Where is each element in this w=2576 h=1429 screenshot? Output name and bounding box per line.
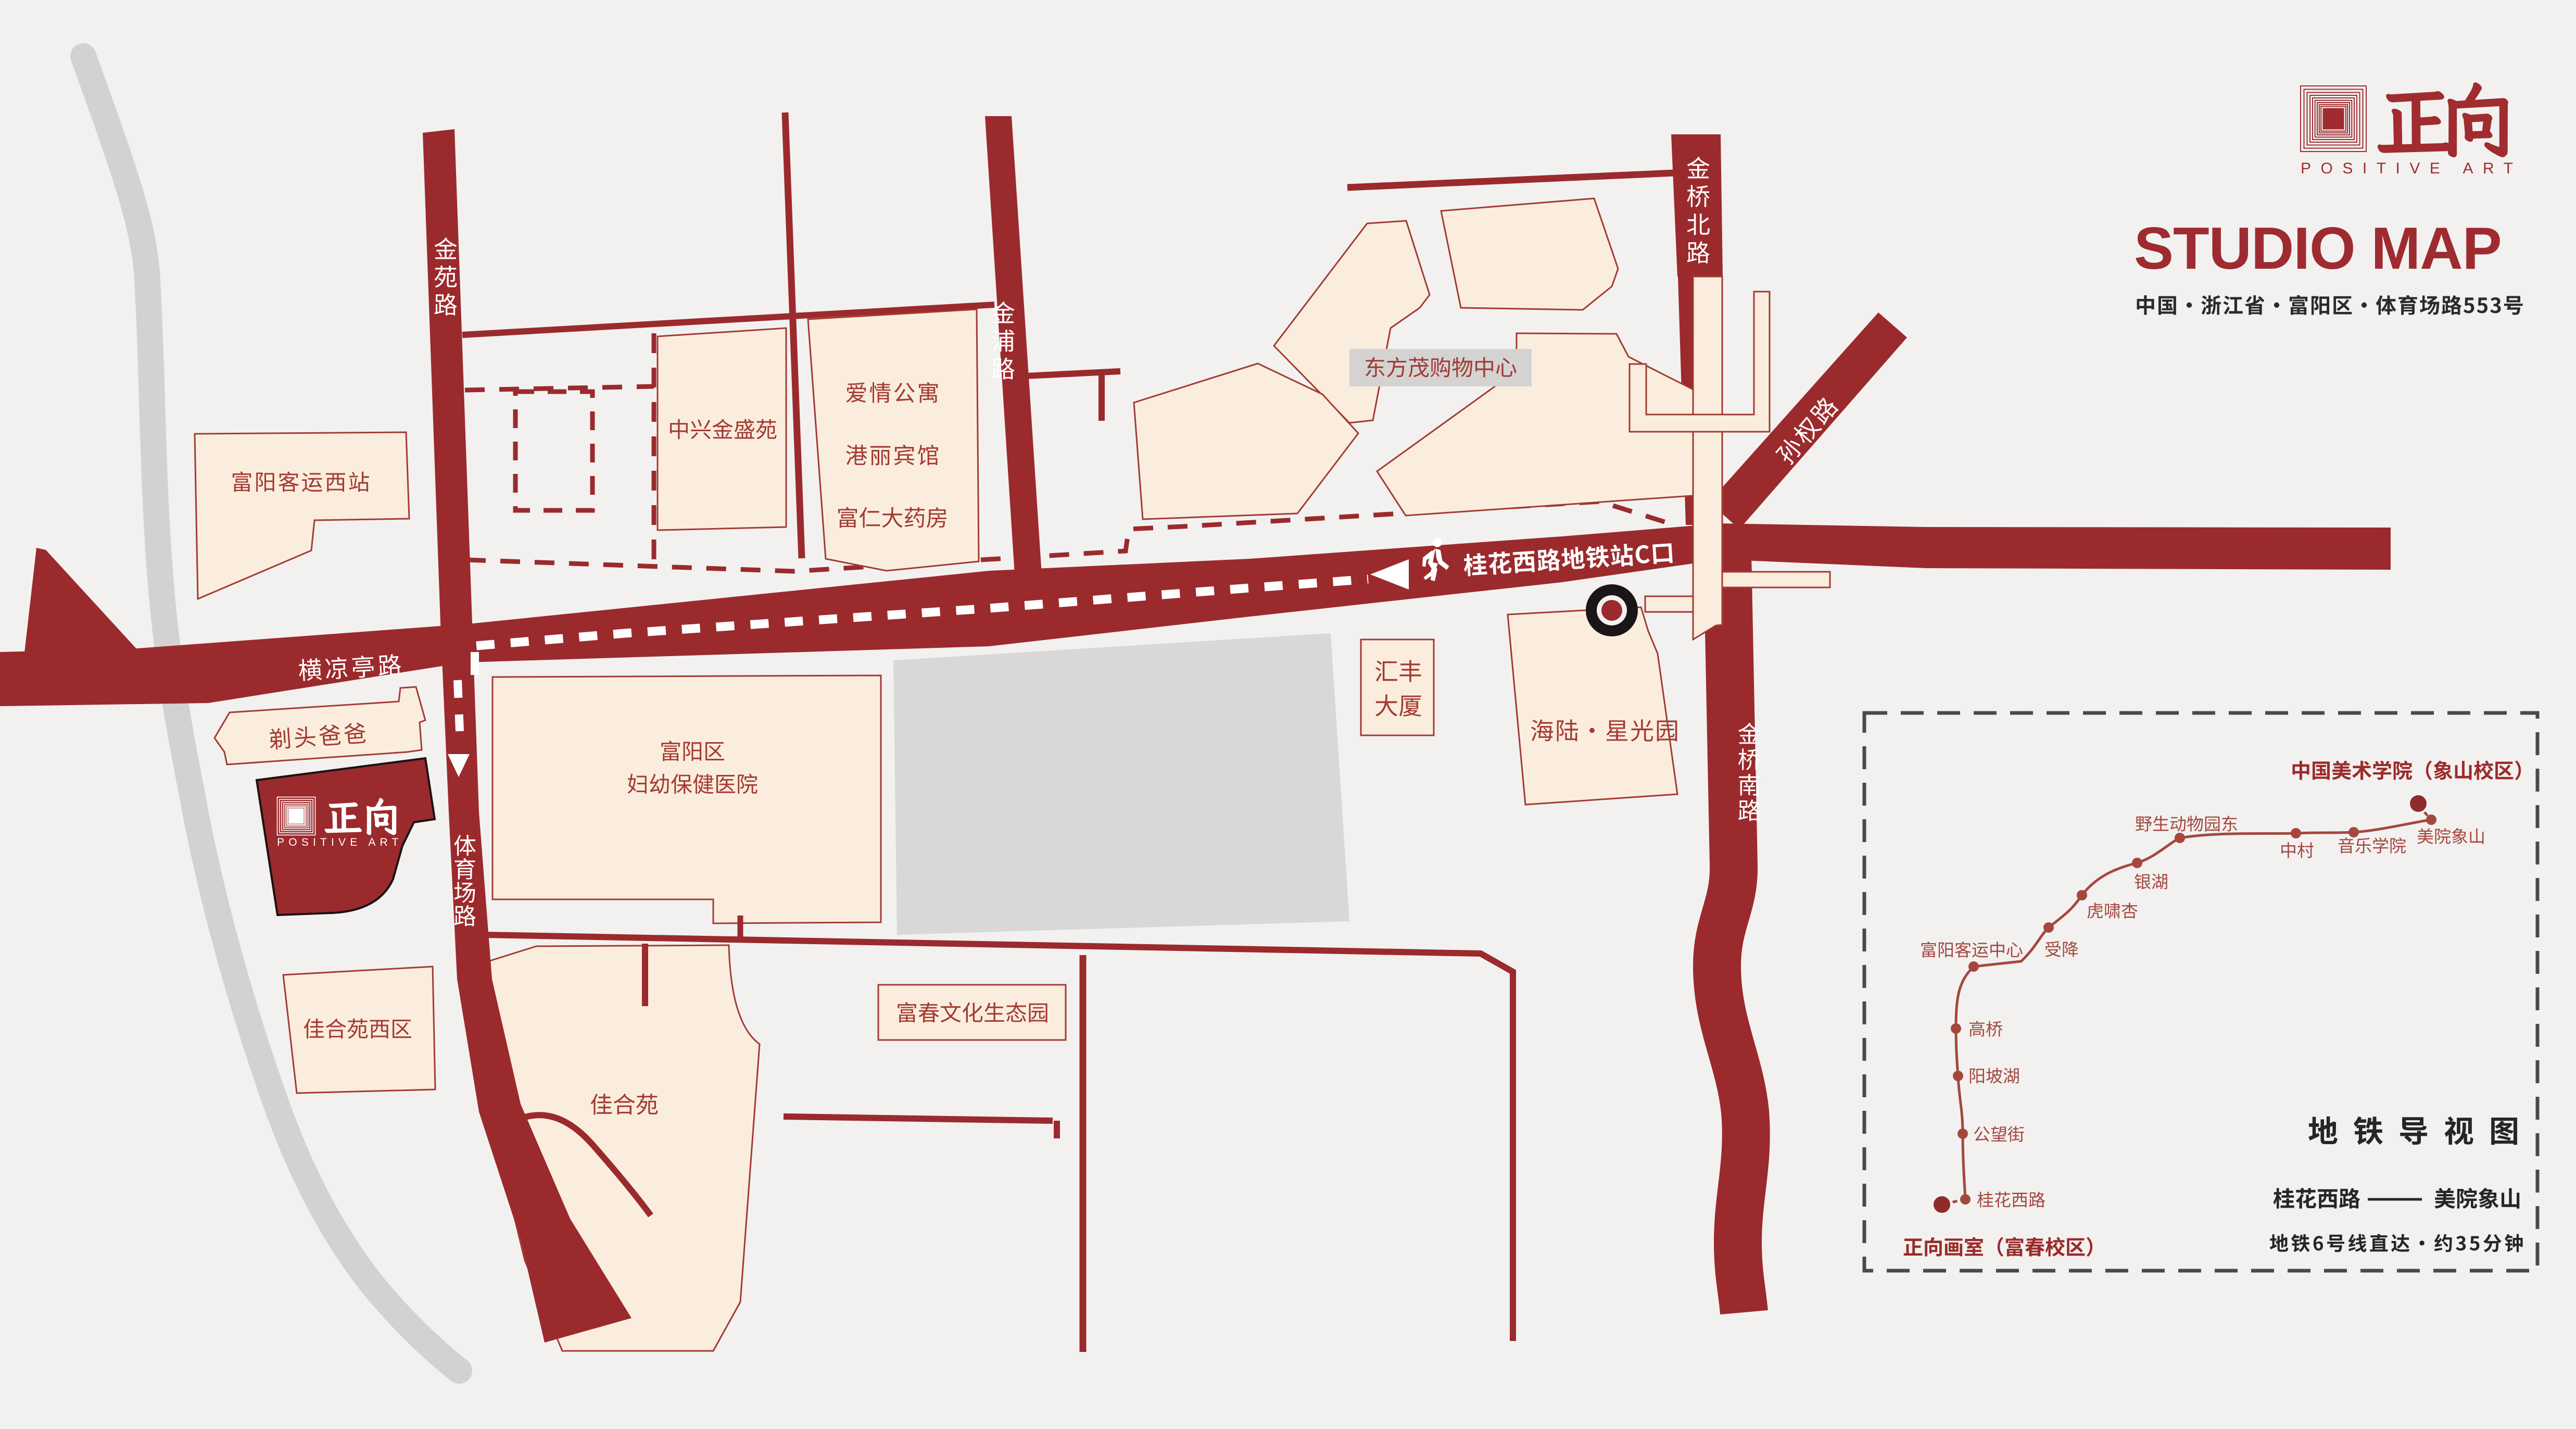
svg-text:STUDIO MAP: STUDIO MAP: [2134, 216, 2502, 282]
svg-text:POSITIVE ART: POSITIVE ART: [2301, 160, 2523, 177]
svg-text:POSITIVE ART: POSITIVE ART: [277, 836, 403, 848]
